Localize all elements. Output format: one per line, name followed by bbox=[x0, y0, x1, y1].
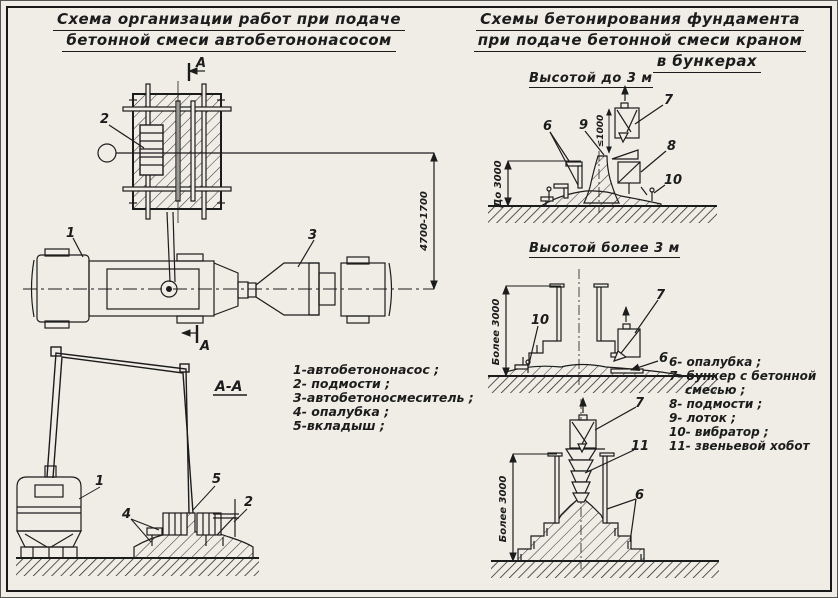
callout-10-s2: 10 bbox=[531, 313, 549, 328]
concrete-pump-truck-plan bbox=[32, 249, 249, 328]
legend-item-3: 3-автобетоносмеситель ; bbox=[293, 391, 474, 405]
foundation-elevation bbox=[134, 499, 253, 558]
callout-4-elev: 4 bbox=[121, 507, 131, 522]
callout-1-plan: 1 bbox=[66, 226, 75, 241]
callout-7-s2: 7 bbox=[656, 288, 666, 303]
drawing-sheet: Схема организации работ при подаче бетон… bbox=[0, 0, 838, 598]
scheme1-diagram bbox=[488, 86, 717, 223]
legend-item-7: 7- бункер с бетонной bbox=[669, 370, 831, 384]
section-mark-bottom bbox=[182, 325, 197, 343]
legend-item-9: 9- лоток ; bbox=[669, 412, 831, 426]
legend-item-11: 11- звеньевой хобот bbox=[669, 440, 831, 454]
left-title-line1: Схема организации работ при подаче bbox=[53, 10, 405, 31]
callout-9-s1: 9 bbox=[579, 118, 588, 133]
legend-item-2: 2- подмости ; bbox=[293, 377, 474, 391]
dim-more3000-text-1: Более 3000 bbox=[491, 299, 502, 366]
section-view-label: А-А bbox=[214, 379, 242, 395]
bunker-scheme1 bbox=[615, 86, 639, 142]
callout-5-elev: 5 bbox=[212, 472, 221, 487]
legend-item-1: 1-автобетононасос ; bbox=[293, 363, 474, 377]
dim-le1000-text: ≤1000 bbox=[596, 115, 606, 148]
callout-11-s3: 11 bbox=[631, 439, 649, 454]
axis-circle bbox=[98, 144, 116, 162]
left-title-line2: бетонной смеси автобетононасосом bbox=[62, 31, 395, 52]
pump-truck-elevation bbox=[17, 466, 81, 558]
boom-elevation bbox=[47, 347, 193, 513]
leader-2-elev bbox=[234, 509, 247, 522]
legend-item-4: 4- опалубка ; bbox=[293, 405, 474, 419]
callout-2-elev: 2 bbox=[244, 495, 253, 510]
callout-10-s1: 10 bbox=[664, 173, 682, 188]
callout-8-s1: 8 bbox=[667, 139, 676, 154]
boom-plan bbox=[167, 212, 175, 282]
callout-3-plan: 3 bbox=[308, 228, 317, 243]
left-drawing-pump-scheme: А А 2 1 3 4700-1700 А-А 1 4 5 2 bbox=[16, 56, 446, 591]
section-letter-bottom: А bbox=[199, 339, 210, 354]
mixer-truck-plan bbox=[248, 257, 392, 323]
legend-item-5: 5-вкладыш ; bbox=[293, 419, 474, 433]
section-letter-top: А bbox=[195, 56, 206, 71]
callout-6-s1: 6 bbox=[543, 119, 552, 134]
callout-7-s3: 7 bbox=[635, 396, 645, 411]
legend-item-6: 6- опалубка ; bbox=[669, 356, 831, 370]
scaffold-plan bbox=[140, 125, 163, 175]
legend-item-8: 8- подмости ; bbox=[669, 398, 831, 412]
callout-6-s3: 6 bbox=[635, 488, 644, 503]
bunker-scheme2 bbox=[611, 307, 643, 373]
leader-5 bbox=[193, 486, 215, 510]
dim-upto3000-text: До 3000 bbox=[493, 160, 504, 208]
callout-2-plan: 2 bbox=[100, 112, 109, 127]
legend-item-10: 10- вибратор ; bbox=[669, 426, 831, 440]
left-scheme-title: Схема организации работ при подаче бетон… bbox=[23, 10, 435, 52]
left-legend: 1-автобетононасос ; 2- подмости ; 3-авто… bbox=[293, 363, 474, 433]
foundation-block-plan bbox=[123, 81, 231, 223]
callout-7-s1: 7 bbox=[664, 93, 674, 108]
dim-more3000-text-2: Более 3000 bbox=[498, 476, 509, 543]
right-drawing-crane-schemes: 6 9 7 8 10 До 3000 ≤1000 10 7 6 Более 30… bbox=[481, 61, 831, 586]
bunker-scheme3 bbox=[570, 398, 596, 452]
dim-boom-reach-text: 4700-1700 bbox=[419, 191, 430, 252]
right-legend: 6- опалубка ; 7- бункер с бетонной смесь… bbox=[669, 356, 831, 454]
right-title-line2: при подаче бетонной смеси краном bbox=[474, 31, 807, 52]
leader-1-elev bbox=[79, 487, 100, 499]
legend-item-7b: смесью ; bbox=[669, 384, 831, 398]
link-trunk bbox=[566, 449, 596, 502]
right-title-line1: Схемы бетонирования фундамента bbox=[476, 10, 804, 31]
callout-6-s2: 6 bbox=[659, 351, 668, 366]
